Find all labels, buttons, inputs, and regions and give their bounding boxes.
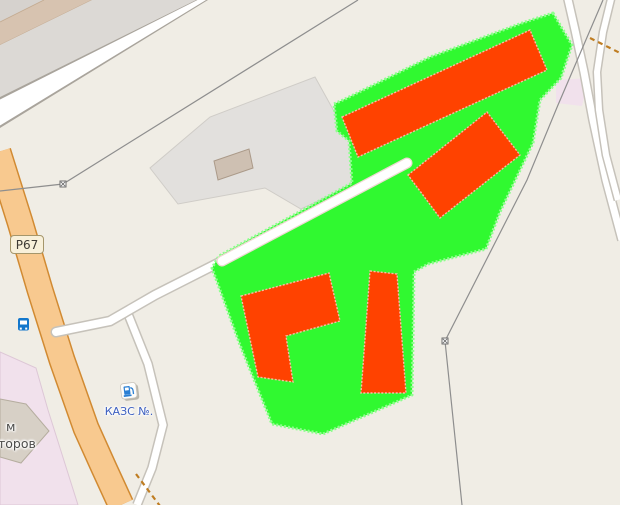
road-ref-badge: Р67 <box>10 235 44 254</box>
power-pole-icon <box>442 338 448 344</box>
map-canvas[interactable]: Р67 КАЗС №. м торов <box>0 0 620 505</box>
bus-stop-icon <box>18 318 29 331</box>
building-name-label-line1: м <box>6 420 15 434</box>
power-pole-icon <box>60 181 66 187</box>
road-ref-text: Р67 <box>16 238 39 252</box>
building-name-label-line2: торов <box>0 437 36 451</box>
fuel-station-icon <box>120 382 140 402</box>
fuel-station-label: КАЗС №. <box>85 406 173 418</box>
